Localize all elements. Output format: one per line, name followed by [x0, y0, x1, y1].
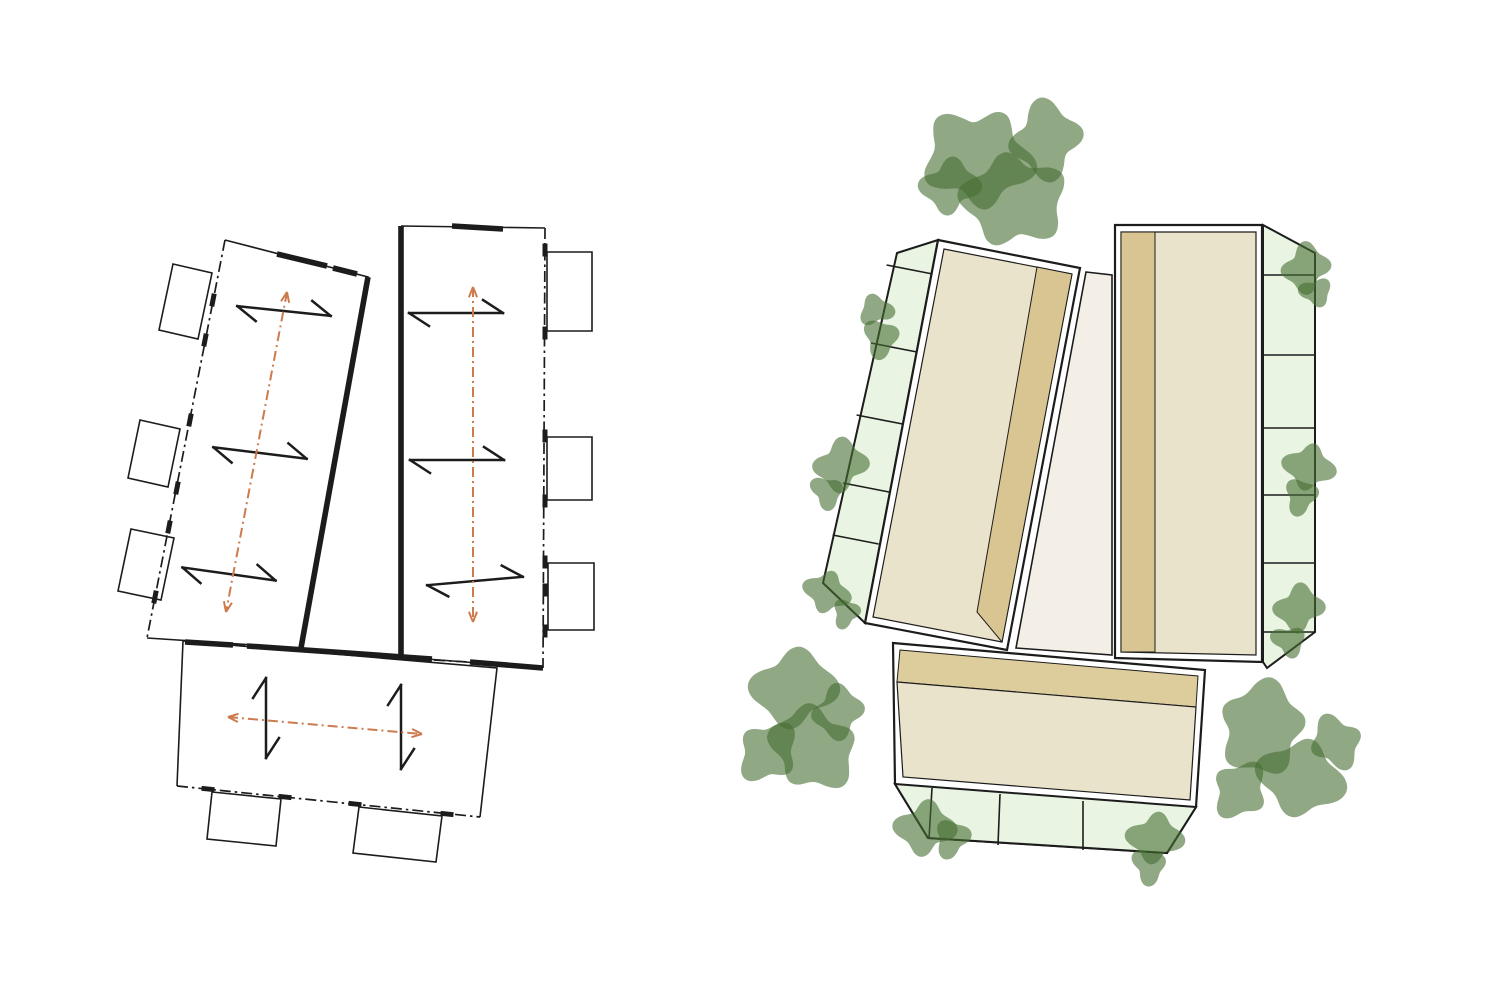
- wall-tick: [212, 294, 214, 307]
- page-background: [0, 0, 1497, 998]
- tree-southwest: [741, 647, 865, 788]
- balcony-a-2: [128, 420, 180, 487]
- wall-tick: [154, 591, 156, 604]
- balcony-c-1: [207, 792, 281, 846]
- balcony-b-2: [547, 437, 592, 500]
- structural-scheme-plan: [118, 226, 594, 862]
- tree-north: [918, 98, 1084, 246]
- wall-tick: [204, 334, 206, 347]
- wall-joint-left: [185, 642, 233, 645]
- balcony-b-1: [547, 252, 592, 331]
- tree-canopy-blob: [810, 478, 843, 511]
- balcony-b-3: [548, 563, 594, 630]
- tree-southeast: [1216, 677, 1361, 818]
- tree-canopy-blob: [741, 723, 795, 781]
- site-roof-plan: [741, 98, 1361, 887]
- tree-canopy-blob: [1132, 850, 1166, 886]
- wall-tick: [441, 813, 454, 814]
- wall-tick: [202, 788, 215, 789]
- balcony-a-1: [159, 264, 212, 339]
- wall-tick: [176, 482, 178, 495]
- block-b-roof-stripe: [1121, 232, 1155, 652]
- wall-b-top: [452, 226, 503, 229]
- balcony-c-2: [353, 807, 442, 862]
- tree-canopy-blob: [1216, 762, 1264, 819]
- wall-tick: [279, 796, 292, 797]
- diagram-canvas: [0, 0, 1497, 998]
- wall-tick: [189, 414, 191, 427]
- wall-tick: [349, 803, 362, 804]
- wall-tick: [168, 521, 170, 534]
